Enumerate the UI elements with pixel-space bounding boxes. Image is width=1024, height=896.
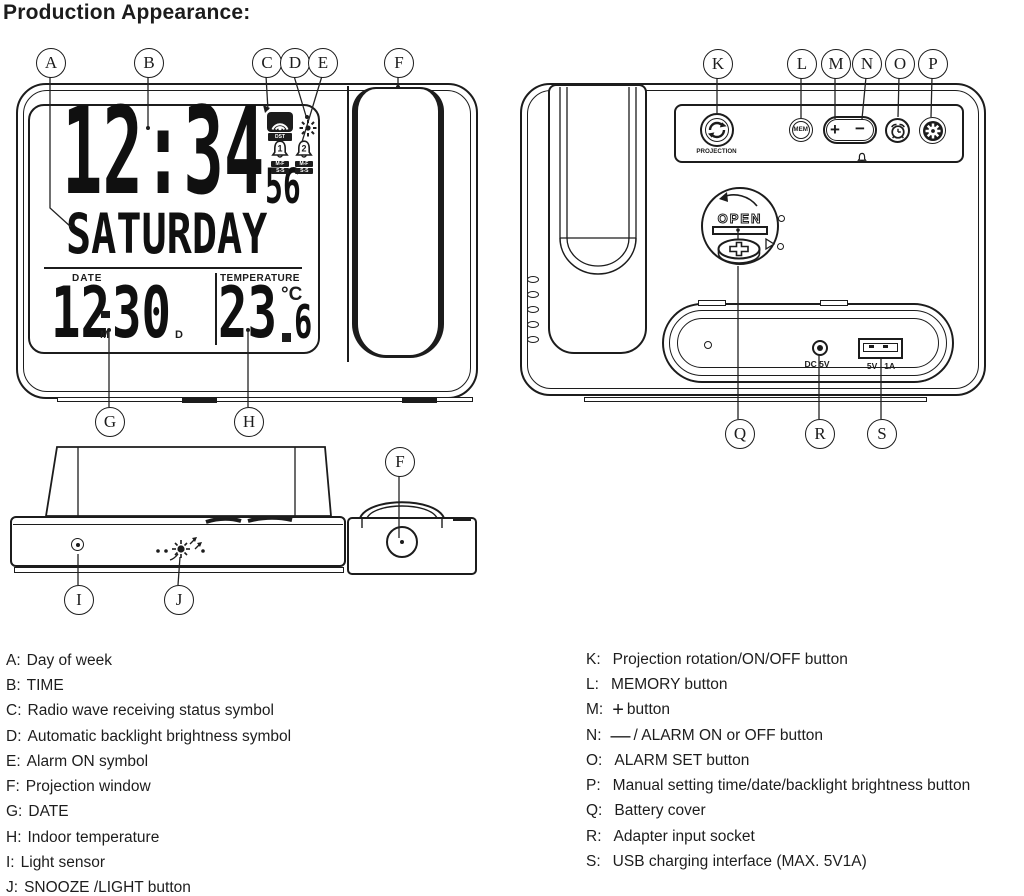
- lcd-divider-vertical: [215, 273, 217, 345]
- callout-b: B: [134, 48, 164, 78]
- top-view-outline: [46, 447, 331, 522]
- reset-hole: [704, 341, 712, 349]
- light-sensor-dot: [76, 543, 80, 547]
- day-of-week-display: SATURDAY: [66, 207, 267, 262]
- usb-contact: [869, 345, 874, 348]
- vent-hole: [527, 291, 539, 298]
- vent-hole: [527, 276, 539, 283]
- callout-q: Q: [725, 419, 755, 449]
- callout-n: N: [852, 49, 882, 79]
- coin-cell-battery-icon: [716, 237, 762, 267]
- manual-page: Production Appearance: 12:34 56 SATURDAY…: [0, 0, 1024, 896]
- radio-wave-icon: [267, 112, 293, 132]
- legend-item: S:USB charging interface (MAX. 5V1A): [586, 849, 970, 874]
- temperature-int-digits: 23: [218, 278, 277, 348]
- projection-lens-dot: [400, 540, 404, 544]
- alarm1-bell-icon: 1: [270, 139, 290, 160]
- page-title: Production Appearance:: [3, 1, 251, 25]
- legend-item: D:Automatic backlight brightness symbol: [6, 724, 291, 749]
- screw-hole: [777, 243, 784, 250]
- day-mark: D: [175, 330, 183, 341]
- foot-right: [402, 398, 437, 403]
- legend-item: I:Light sensor: [6, 850, 291, 875]
- arm-section-notch: [453, 517, 471, 521]
- settings-button: [919, 117, 946, 144]
- foot-left: [182, 398, 217, 403]
- legend-right-column: K:Projection rotation/ON/OFF button L:ME…: [586, 647, 970, 875]
- date-day-digits: 30: [112, 278, 171, 348]
- battery-cover-open-label: OPEN: [711, 212, 769, 225]
- callout-m: M: [821, 49, 851, 79]
- projection-button-label: PROJECTION: [682, 147, 752, 157]
- legend-item: J:SNOOZE /LIGHT button: [6, 876, 291, 896]
- recess-tab: [820, 300, 848, 306]
- callout-s: S: [867, 419, 897, 449]
- dc-input-pin: [817, 345, 823, 351]
- top-view-base-lip: [14, 567, 344, 573]
- callout-j: J: [164, 585, 194, 615]
- callout-p: P: [918, 49, 948, 79]
- callout-e: E: [308, 48, 338, 78]
- time-display: 12:34: [62, 93, 264, 213]
- alarm-set-button: [885, 118, 910, 143]
- usb-label: 5V1A: [860, 362, 902, 371]
- legend-item: E:Alarm ON symbol: [6, 749, 291, 774]
- temperature-point: [282, 333, 291, 342]
- vent-hole: [527, 321, 539, 328]
- top-view-seam-line: [13, 524, 343, 525]
- legend-item: A:Day of week: [6, 648, 291, 673]
- legend-item: O:ALARM SET button: [586, 748, 970, 773]
- minus-button: −: [852, 119, 868, 139]
- alarm1-weekend-badge: S-S: [271, 168, 289, 174]
- vent-hole: [527, 336, 539, 343]
- legend-item: F:Projection window: [6, 774, 291, 799]
- legend-item: N:—/ ALARM ON or OFF button: [586, 723, 970, 748]
- svg-text:1: 1: [277, 144, 282, 154]
- legend-item: Q:Battery cover: [586, 799, 970, 824]
- plus-button: +: [827, 120, 843, 140]
- callout-d: D: [280, 48, 310, 78]
- legend-item: B:TIME: [6, 673, 291, 698]
- legend-item: K:Projection rotation/ON/OFF button: [586, 647, 970, 672]
- auto-backlight-sun-icon: [298, 118, 318, 138]
- callout-f2: F: [385, 447, 415, 477]
- callout-k: K: [703, 49, 733, 79]
- battery-cover-slot: [712, 226, 768, 235]
- legend-left-column: A:Day of week B:TIME C:Radio wave receiv…: [6, 648, 291, 896]
- callout-c: C: [252, 48, 282, 78]
- alarm1-weekday-badge: M-F: [271, 161, 289, 167]
- legend-item: G:DATE: [6, 800, 291, 825]
- legend-item: R:Adapter input socket: [586, 824, 970, 849]
- legend-item: M:+button: [586, 698, 970, 723]
- callout-f: F: [384, 48, 414, 78]
- projection-window-front: [352, 87, 444, 358]
- callout-r: R: [805, 419, 835, 449]
- callout-i: I: [64, 585, 94, 615]
- panel-seam-line: [347, 86, 349, 362]
- legend-item: P:Manual setting time/date/backlight bri…: [586, 773, 970, 798]
- lcd-divider-horizontal: [44, 267, 302, 269]
- callout-h: H: [234, 407, 264, 437]
- callout-o: O: [885, 49, 915, 79]
- screw-hole: [778, 215, 785, 222]
- date-separator: [101, 311, 110, 318]
- svg-text:2: 2: [301, 144, 306, 154]
- stand-housing: [548, 84, 647, 354]
- rotation-arrows-icon: [705, 118, 729, 142]
- callout-l: L: [787, 49, 817, 79]
- month-mark: M: [100, 330, 109, 341]
- alarm2-weekday-badge: M-F: [295, 161, 313, 167]
- alarm2-weekend-badge: S-S: [295, 168, 313, 174]
- vent-hole: [527, 306, 539, 313]
- temperature-unit: °C: [281, 285, 302, 304]
- temperature-frac-digit: 6: [294, 299, 312, 345]
- alarm2-bell-icon: 2: [294, 139, 314, 160]
- gear-icon: [922, 120, 944, 142]
- alarm-clock-icon: [889, 122, 907, 140]
- recess-tab: [698, 300, 726, 306]
- legend-item: H:Indoor temperature: [6, 825, 291, 850]
- back-base-lip: [584, 397, 927, 402]
- callout-a: A: [36, 48, 66, 78]
- callout-g: G: [95, 407, 125, 437]
- alarm-bell-icon: [857, 150, 867, 161]
- usb-contact: [883, 345, 888, 348]
- dc-input-label: DC 5V: [797, 360, 837, 369]
- legend-item: C:Radio wave receiving status symbol: [6, 699, 291, 724]
- legend-item: L:MEMORY button: [586, 672, 970, 697]
- memory-button-inner: MEM: [792, 121, 810, 139]
